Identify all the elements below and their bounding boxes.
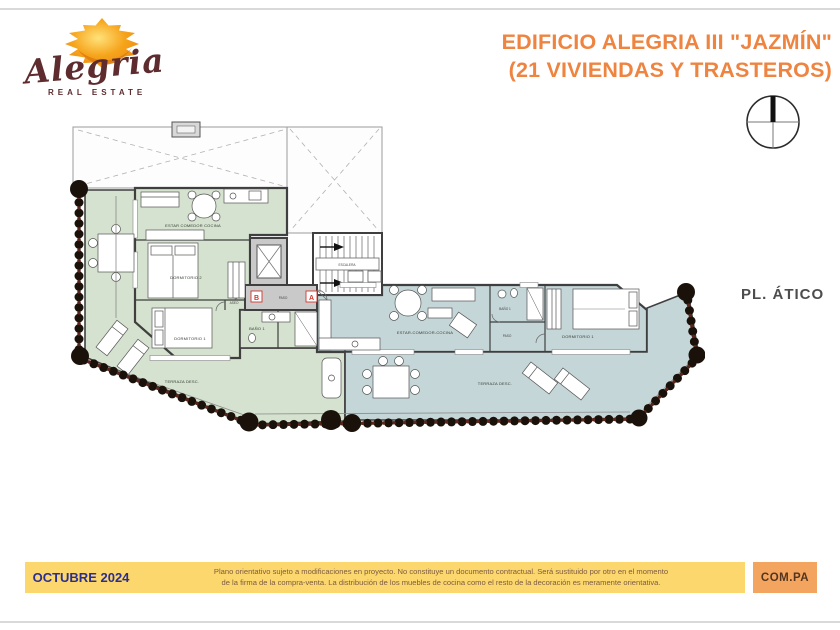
unit-a-living-label: ESTAR-COMEDOR-COCINA — [397, 330, 453, 335]
unit-a-bedroom-furniture — [547, 289, 639, 329]
footer-disclaimer: Plano orientativo sujeto a modificacione… — [137, 567, 745, 588]
footer-bar: OCTUBRE 2024 Plano orientativo sujeto a … — [25, 562, 745, 593]
north-compass-icon — [741, 90, 805, 154]
slide-bottom-border — [0, 621, 840, 623]
unit-a-terrace-label: TERRAZA DESC. — [478, 381, 512, 386]
page-title: EDIFICIO ALEGRIA III "JAZMÍN" (21 VIVIEN… — [412, 28, 832, 84]
disclaimer-line-1: Plano orientativo sujeto a modificacione… — [143, 567, 739, 578]
title-line-1: EDIFICIO ALEGRIA III "JAZMÍN" — [412, 28, 832, 56]
unit-b-marker: B — [254, 295, 259, 302]
floorplan-drawing: ESCALERA PASO B A — [55, 105, 705, 450]
elevator — [250, 238, 287, 285]
title-line-2: (21 VIVIENDAS Y TRASTEROS) — [412, 56, 832, 84]
disclaimer-line-2: de la firma de la compra-venta. La distr… — [143, 578, 739, 589]
unit-a-bedroom1-label: DORMITORIO 1 — [562, 334, 594, 339]
unit-b-toilet-label: ASEO — [230, 301, 239, 305]
unit-a-marker: A — [309, 295, 314, 302]
floor-label: PL. ÁTICO — [741, 286, 824, 303]
brand-tagline: REAL ESTATE — [48, 88, 146, 97]
unit-b-living-label: ESTAR COMEDOR COCINA — [165, 223, 221, 228]
landing-hall: PASO B A — [245, 285, 317, 310]
unit-a-hall-label: PASO — [503, 334, 512, 338]
footer-code-badge: COM.PA — [753, 562, 817, 593]
unit-b-bath-label: BAÑO 1 — [249, 326, 265, 331]
roof-vent-box — [172, 122, 200, 137]
unit-b-terrace-label: TERRAZA DESC. — [165, 379, 199, 384]
footer-date: OCTUBRE 2024 — [25, 570, 137, 585]
unit-b-bedroom2-label: DORMITORIO 2 — [170, 275, 202, 280]
unit-a-bath-label: BAÑO 1 — [499, 306, 511, 311]
brand-logo: Alegria REAL ESTATE — [10, 6, 180, 116]
hall-label: PASO — [279, 296, 288, 300]
stairs-label: ESCALERA — [338, 263, 356, 267]
unit-b-bedroom1-label: DORMITORIO 1 — [174, 336, 206, 341]
